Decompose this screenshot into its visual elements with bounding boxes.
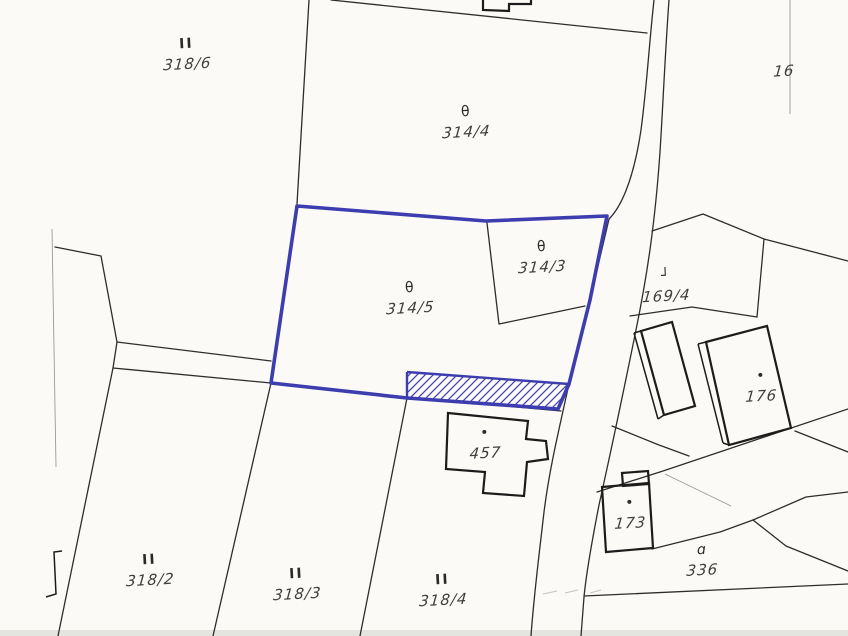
- boundary-left-notch: [46, 551, 62, 597]
- boundary-left-upper: [55, 247, 271, 361]
- building-169-barn: [641, 322, 695, 415]
- boundary-169-top: [652, 214, 848, 261]
- boundary-314-3: [487, 223, 585, 324]
- boundary-bottom-right: [584, 584, 848, 596]
- boundary-top-diagonal: [331, 0, 647, 33]
- scan-edge-band: [0, 630, 848, 636]
- boundary-318-3-318-4: [360, 398, 407, 636]
- faint-boundary-336: [665, 474, 731, 506]
- building-176-annex: [698, 342, 729, 445]
- boundary-173-top: [612, 426, 689, 456]
- boundary-right-v-lower: [753, 520, 848, 571]
- boundary-336-top: [597, 409, 848, 492]
- map-canvas[interactable]: II 318/6 θ 314/4 θ 314/3 θ 314/5 ┘ 169/4…: [0, 0, 848, 636]
- boundary-right-v-upper: [753, 492, 848, 520]
- boundary-169-right: [757, 239, 764, 317]
- boundary-176-right: [795, 431, 848, 452]
- boundary-318-2-318-3: [213, 383, 271, 636]
- building-457: [446, 413, 548, 496]
- boundary-318-2-left: [58, 342, 117, 636]
- faint-boundary-left: [52, 229, 56, 467]
- building-169-barn-annex: [634, 331, 664, 419]
- building-173: [602, 483, 653, 552]
- building-top: [483, 0, 531, 11]
- boundary-169-bottom: [630, 307, 757, 317]
- faint-marks: [543, 590, 601, 594]
- boundary-336-bottom: [652, 520, 753, 549]
- boundary-314-4-left: [297, 0, 309, 204]
- parcel-boundary-drawing: [0, 0, 848, 636]
- road-right-edge: [581, 0, 669, 636]
